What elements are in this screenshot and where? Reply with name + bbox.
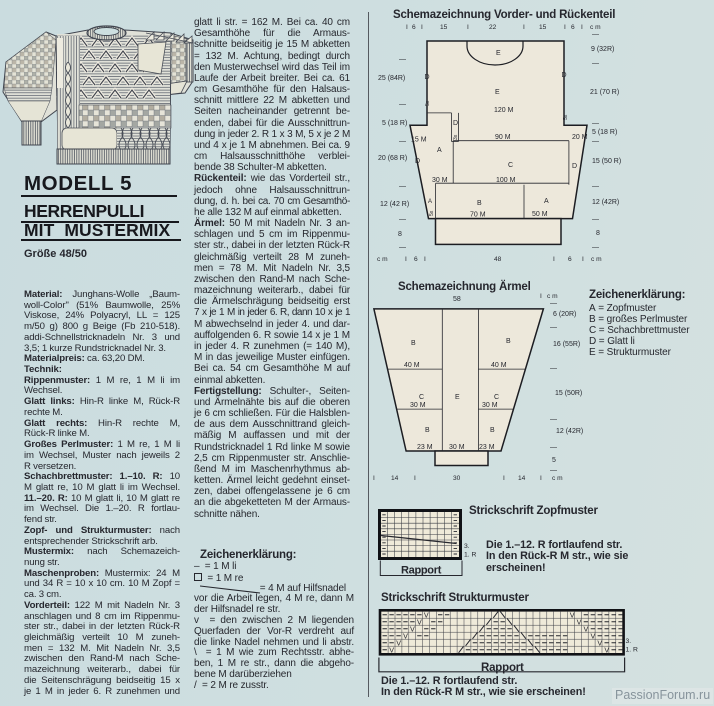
svg-text:E: E [455, 394, 460, 401]
svg-text:23 M: 23 M [479, 444, 495, 451]
svg-text:100 M: 100 M [496, 177, 516, 184]
svg-text:D: D [562, 72, 567, 79]
svg-text:V: V [396, 638, 401, 647]
svg-text:90 M: 90 M [495, 134, 511, 141]
svg-text:23 M: 23 M [417, 444, 433, 451]
svg-text:—: — [592, 120, 599, 127]
svg-text:30: 30 [453, 475, 461, 482]
svg-text:B: B [425, 427, 430, 434]
svg-text:6: 6 [568, 256, 572, 263]
svg-text:c m: c m [547, 293, 558, 300]
svg-text:C: C [508, 162, 513, 169]
svg-text:70 M: 70 M [470, 212, 486, 219]
svg-text:V: V [403, 631, 408, 640]
svg-text:V: V [570, 610, 575, 619]
svg-text:5: 5 [552, 457, 556, 464]
svg-text:I: I [467, 24, 469, 31]
svg-text:3x: 3x [453, 134, 459, 140]
svg-text:I: I [406, 24, 408, 31]
svg-text:Rapport: Rapport [481, 662, 524, 674]
svg-text:V: V [424, 610, 429, 619]
svg-text:I: I [582, 256, 584, 263]
svg-text:Rapport: Rapport [401, 565, 442, 577]
svg-text:15 (50R): 15 (50R) [555, 390, 582, 397]
svg-text:—: — [592, 183, 599, 190]
svg-text:—: — [399, 183, 406, 190]
svg-text:A: A [544, 198, 549, 205]
svg-text:14: 14 [391, 475, 399, 482]
svg-text:—: — [592, 60, 599, 67]
svg-text:—: — [592, 216, 599, 223]
svg-text:I: I [540, 293, 542, 300]
svg-text:—: — [399, 244, 406, 251]
svg-text:—: — [592, 138, 599, 145]
svg-text:6: 6 [571, 24, 575, 31]
svg-text:—: — [550, 416, 557, 423]
svg-text:C: C [419, 394, 424, 401]
svg-text:15: 15 [539, 24, 547, 31]
svg-text:1. R: 1. R [626, 647, 639, 654]
svg-text:V: V [577, 617, 582, 626]
svg-text:22: 22 [489, 24, 497, 31]
svg-text:V: V [604, 645, 609, 654]
svg-text:8: 8 [596, 230, 600, 237]
svg-text:5 (18 R): 5 (18 R) [592, 129, 617, 136]
svg-text:I: I [564, 24, 566, 31]
svg-text:25 (84R): 25 (84R) [378, 75, 405, 82]
svg-text:V: V [417, 617, 422, 626]
svg-text:120 M: 120 M [494, 107, 514, 114]
svg-text:V: V [591, 631, 596, 640]
svg-text:E: E [496, 50, 501, 57]
svg-text:30 M: 30 M [432, 177, 448, 184]
svg-text:I: I [421, 24, 423, 31]
svg-text:B: B [490, 427, 495, 434]
svg-text:5x: 5x [563, 114, 569, 120]
svg-text:—: — [399, 216, 406, 223]
svg-text:—: — [550, 365, 557, 372]
svg-text:I: I [373, 475, 375, 482]
svg-text:30 M: 30 M [449, 444, 465, 451]
svg-text:3.: 3. [464, 543, 470, 550]
svg-text:B: B [477, 200, 482, 207]
svg-text:A: A [437, 147, 442, 154]
svg-text:I: I [405, 256, 407, 263]
svg-text:20 M: 20 M [572, 134, 588, 141]
svg-text:—: — [550, 444, 557, 451]
svg-text:21 (70 R): 21 (70 R) [590, 89, 619, 96]
svg-text:—: — [550, 300, 557, 307]
svg-text:—: — [592, 244, 599, 251]
svg-text:I: I [414, 475, 416, 482]
svg-text:—: — [550, 467, 557, 474]
svg-text:—: — [399, 56, 406, 63]
svg-text:12 (42 R): 12 (42 R) [380, 201, 409, 208]
svg-text:B: B [411, 340, 416, 347]
svg-text:12 (42R): 12 (42R) [556, 428, 583, 435]
svg-text:I: I [540, 475, 542, 482]
svg-text:V: V [597, 638, 602, 647]
svg-text:D: D [425, 74, 430, 81]
svg-text:D: D [572, 163, 577, 170]
svg-text:16 (55R): 16 (55R) [553, 341, 580, 348]
svg-text:I: I [553, 256, 555, 263]
svg-text:I: I [503, 475, 505, 482]
svg-text:50 M: 50 M [532, 211, 548, 218]
svg-text:D: D [453, 120, 458, 127]
svg-text:30 M: 30 M [410, 402, 426, 409]
svg-text:5x: 5x [429, 210, 435, 216]
svg-text:6: 6 [414, 256, 418, 263]
svg-text:1. R: 1. R [464, 552, 477, 559]
svg-text:V: V [584, 624, 589, 633]
svg-text:V: V [410, 624, 415, 633]
svg-text:V: V [389, 645, 394, 654]
svg-text:15: 15 [440, 24, 448, 31]
svg-text:—: — [399, 138, 406, 145]
svg-text:—: — [592, 31, 599, 38]
svg-text:5 (18 R): 5 (18 R) [382, 120, 407, 127]
svg-text:c m: c m [377, 256, 388, 263]
svg-text:B: B [506, 338, 511, 345]
svg-text:I: I [581, 24, 583, 31]
svg-text:5x: 5x [425, 100, 431, 106]
svg-text:A: A [428, 199, 432, 205]
svg-text:9 (32R): 9 (32R) [591, 46, 614, 53]
svg-text:—: — [399, 101, 406, 108]
svg-text:E: E [495, 89, 500, 96]
svg-text:c m: c m [591, 256, 602, 263]
svg-text:40 M: 40 M [491, 362, 507, 369]
svg-text:14: 14 [518, 475, 526, 482]
svg-text:c m: c m [552, 475, 563, 482]
svg-text:58: 58 [453, 296, 461, 303]
svg-text:I: I [424, 256, 426, 263]
svg-text:15 (50 R): 15 (50 R) [592, 158, 621, 165]
svg-text:C: C [494, 394, 499, 401]
svg-text:20 (68 R): 20 (68 R) [378, 155, 407, 162]
svg-text:8: 8 [398, 231, 402, 238]
svg-text:3.: 3. [626, 638, 632, 645]
svg-text:15 M: 15 M [411, 137, 427, 144]
svg-text:30 M: 30 M [482, 402, 498, 409]
svg-text:48: 48 [494, 256, 502, 263]
svg-text:12 (42R): 12 (42R) [592, 199, 619, 206]
svg-text:6 (20R): 6 (20R) [553, 311, 576, 318]
svg-text:c m: c m [590, 24, 601, 31]
svg-text:—: — [550, 324, 557, 331]
svg-text:6: 6 [412, 24, 416, 31]
svg-text:D: D [415, 158, 420, 165]
svg-text:40 M: 40 M [404, 362, 420, 369]
svg-text:I: I [523, 24, 525, 31]
